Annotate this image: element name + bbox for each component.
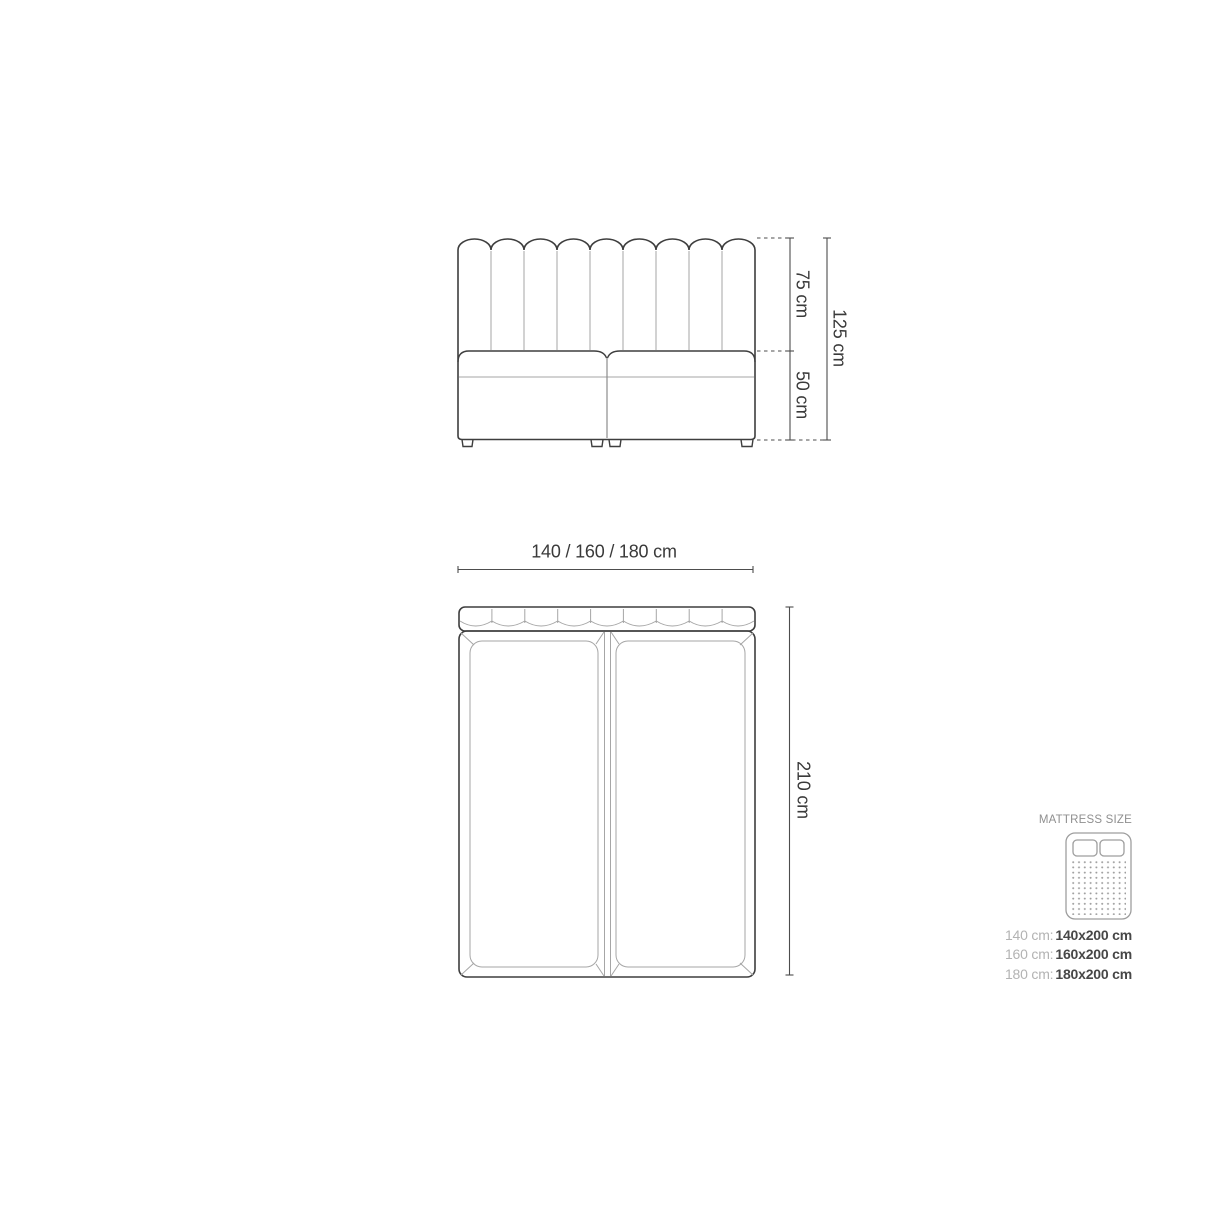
legend-rows: 140 cm:140x200 cm 160 cm:160x200 cm 180 … — [1000, 926, 1132, 984]
diagram-line-art — [0, 0, 1214, 1214]
legend-row-value: 140x200 cm — [1055, 927, 1132, 943]
legend-row: 180 cm:180x200 cm — [1000, 965, 1132, 984]
mattress-top-view-icon — [1066, 833, 1131, 919]
mattress-size-legend: MATTRESS SIZE 140 cm:140x200 cm 160 cm:1… — [1000, 814, 1132, 830]
bed-width-dimension-label: 140 / 160 / 180 cm — [531, 542, 677, 563]
legend-row-label: 160 cm: — [1005, 946, 1053, 962]
legend-row-value: 160x200 cm — [1055, 946, 1132, 962]
legend-row-value: 180x200 cm — [1055, 966, 1132, 982]
bed-length-dimension-label: 210 cm — [793, 761, 814, 819]
plan-view — [459, 607, 755, 977]
legend-row: 160 cm:160x200 cm — [1000, 945, 1132, 964]
front-elevation-view — [458, 239, 755, 446]
total-height-dimension-label: 125 cm — [829, 309, 850, 367]
legend-title: MATTRESS SIZE — [1000, 814, 1132, 826]
bed-feet — [462, 440, 753, 447]
base-height-dimension-label: 50 cm — [792, 371, 813, 419]
plan-width-dimension — [458, 566, 753, 573]
legend-row: 140 cm:140x200 cm — [1000, 926, 1132, 945]
bed-dimension-diagram-page: 75 cm 50 cm 125 cm 140 / 160 / 180 cm 21… — [0, 0, 1214, 1214]
headboard-height-dimension-label: 75 cm — [792, 270, 813, 318]
legend-row-label: 180 cm: — [1005, 966, 1053, 982]
legend-row-label: 140 cm: — [1005, 927, 1053, 943]
